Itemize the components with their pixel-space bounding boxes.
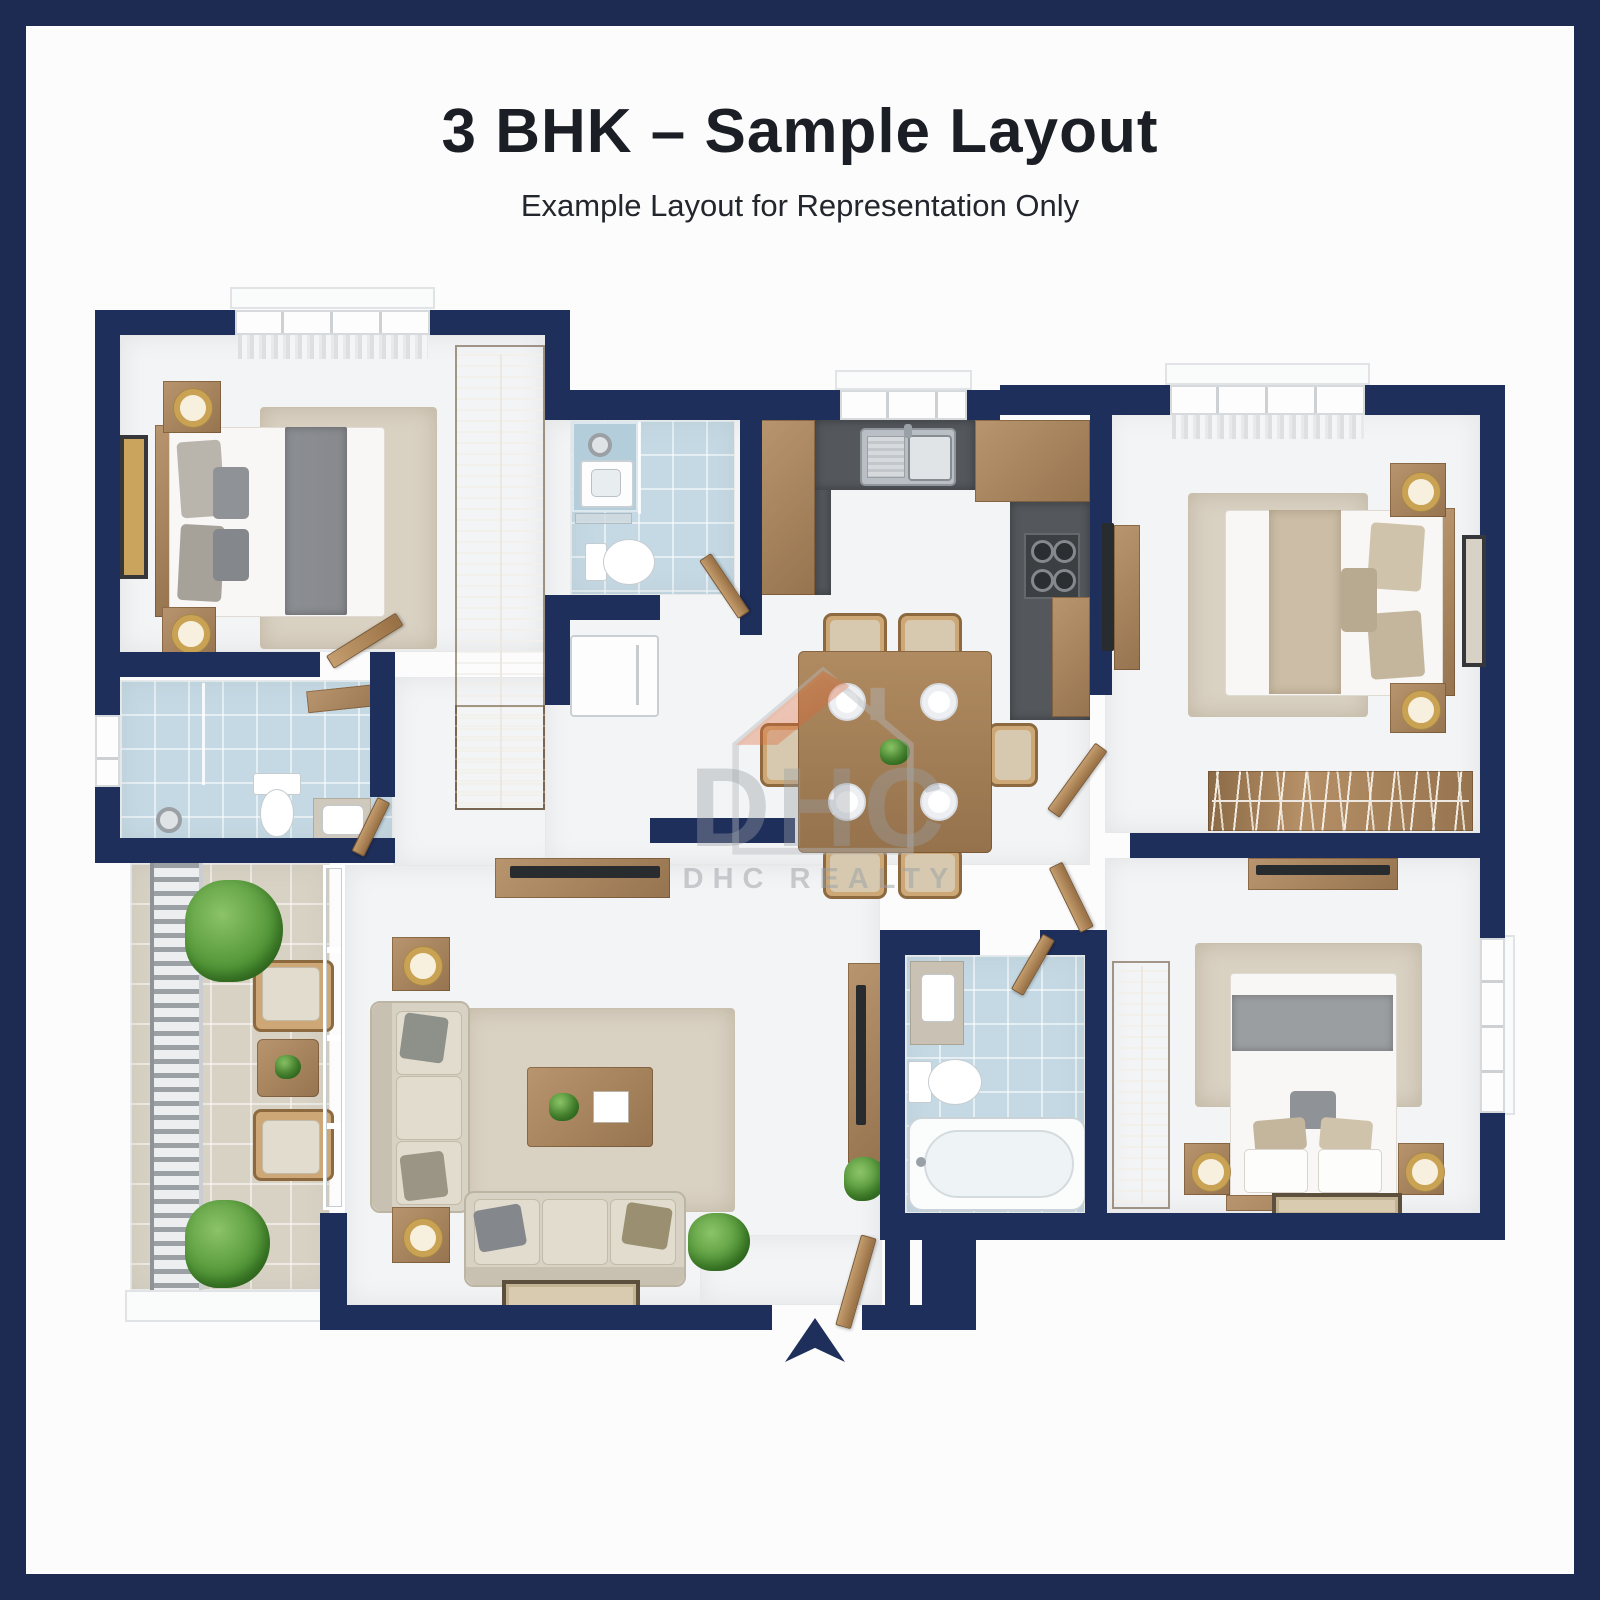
wall [740, 390, 762, 635]
shower-glass [638, 422, 641, 514]
bathroom-2-sink [580, 460, 634, 508]
floor-plan: DHC DHC REALTY [90, 295, 1510, 1375]
pillow [399, 1150, 448, 1201]
bathtub [908, 1117, 1086, 1211]
pillow [399, 1012, 449, 1064]
table-lamp [1402, 473, 1440, 511]
wall [885, 1240, 910, 1308]
kitchen-cabinet-corner [975, 420, 1090, 502]
shower-head-icon [588, 433, 612, 457]
centerpiece-plant [880, 739, 910, 765]
balcony-table [257, 1039, 319, 1097]
sofa-horizontal [464, 1191, 686, 1287]
pillow [213, 529, 249, 581]
wall [95, 310, 235, 335]
pillow [1319, 1117, 1374, 1153]
kitchen-sink [860, 428, 956, 486]
kitchen-cabinet-lower [1052, 597, 1090, 717]
tv-screen [510, 866, 660, 878]
table-lamp [174, 389, 212, 427]
glass-shelf [575, 513, 632, 524]
table-lamp [1192, 1153, 1230, 1191]
balcony-sliding-door [323, 865, 345, 1210]
tv-screen [1256, 865, 1390, 875]
bedroom-2-curtain [1172, 415, 1364, 439]
toilet [585, 535, 657, 587]
plate [828, 783, 866, 821]
wall [570, 595, 660, 620]
bedroom-1-window [235, 310, 430, 335]
wall [320, 1213, 347, 1305]
bedroom-3-door [1049, 862, 1094, 933]
plate [828, 683, 866, 721]
wall [570, 390, 840, 420]
faucet-icon [916, 1157, 926, 1167]
kitchen-window [840, 390, 967, 420]
toilet-bowl [928, 1059, 982, 1105]
bathtub-basin [924, 1130, 1074, 1198]
balcony-chair [253, 960, 334, 1032]
dining-chair [898, 847, 962, 899]
window-sill [230, 287, 435, 309]
bedroom-2-bed [1223, 508, 1455, 696]
plate [920, 783, 958, 821]
window-sill [835, 370, 972, 390]
wall [967, 390, 1000, 420]
stove [1024, 533, 1080, 599]
pillow [1253, 1117, 1308, 1153]
tv-console [495, 858, 670, 898]
window-sill [1165, 363, 1370, 385]
toilet [908, 1055, 982, 1107]
sink-basin [921, 974, 955, 1022]
page-title: 3 BHK – Sample Layout [0, 96, 1600, 167]
tv-screen [1102, 523, 1114, 651]
bedroom-1-curtain [238, 335, 428, 359]
bedroom-1-bed [155, 425, 385, 617]
wall [95, 310, 120, 677]
wall [650, 818, 795, 843]
wall [95, 652, 320, 677]
bedroom-2-window [1170, 385, 1365, 415]
drainboard [867, 436, 905, 478]
wall [880, 930, 980, 955]
hall-wardrobe [455, 705, 545, 810]
balcony-slab [125, 1290, 340, 1322]
wall [95, 677, 120, 715]
table-lamp [404, 1219, 442, 1257]
pillow [1341, 568, 1377, 632]
blanket [1232, 995, 1393, 1051]
table-plant [549, 1093, 579, 1121]
wall [95, 838, 395, 863]
wall [862, 1305, 976, 1330]
table-lamp [1402, 691, 1440, 729]
wall [880, 930, 905, 1213]
wall [320, 1305, 772, 1330]
tv-screen [856, 985, 866, 1125]
table-plant [275, 1055, 301, 1079]
blanket [285, 427, 347, 615]
dining-chair [823, 847, 887, 899]
sink-basin [322, 805, 364, 835]
table-lamp [172, 615, 210, 653]
pillow [213, 467, 249, 519]
balcony-chair [253, 1109, 334, 1181]
toilet [253, 773, 299, 837]
blanket [1269, 510, 1341, 694]
bookshelf [1208, 771, 1473, 831]
kitchen-cabinet-left [755, 420, 815, 595]
table-lamp [404, 947, 442, 985]
sink-basin [908, 435, 952, 481]
bedroom-3-wardrobe [1112, 961, 1170, 1209]
wall [1130, 833, 1505, 858]
bathroom-3-vanity [910, 961, 964, 1045]
wall [1480, 858, 1505, 938]
wall-art [1462, 535, 1486, 667]
wall [545, 595, 570, 705]
pillow [473, 1203, 528, 1253]
bathroom-1-window [95, 715, 120, 787]
bedroom-3-window [1480, 938, 1505, 1113]
wall [545, 310, 570, 420]
shower-head-icon [156, 807, 182, 833]
dining-table [798, 651, 992, 853]
entry-closet-block [922, 1230, 976, 1308]
pillow [1318, 1149, 1382, 1193]
tv-console [1114, 525, 1140, 670]
pillow [1244, 1149, 1308, 1193]
faucet-icon [904, 424, 912, 438]
table-lamp [1406, 1153, 1444, 1191]
coffee-table-book [593, 1091, 629, 1123]
wall-art [120, 435, 148, 579]
wall [370, 652, 395, 797]
coffee-table [527, 1067, 653, 1147]
toilet-bowl [260, 789, 294, 837]
bedroom-3-bed [1230, 973, 1395, 1211]
page-subtitle: Example Layout for Representation Only [0, 188, 1600, 224]
wall [1085, 930, 1107, 1213]
plate [920, 683, 958, 721]
utility-appliance [570, 635, 659, 717]
wall [1000, 385, 1170, 415]
shower-partition [202, 683, 205, 785]
toilet-bowl [603, 539, 655, 585]
dining-chair [988, 723, 1038, 787]
sofa-vertical [370, 1001, 470, 1213]
pillow [621, 1202, 673, 1251]
